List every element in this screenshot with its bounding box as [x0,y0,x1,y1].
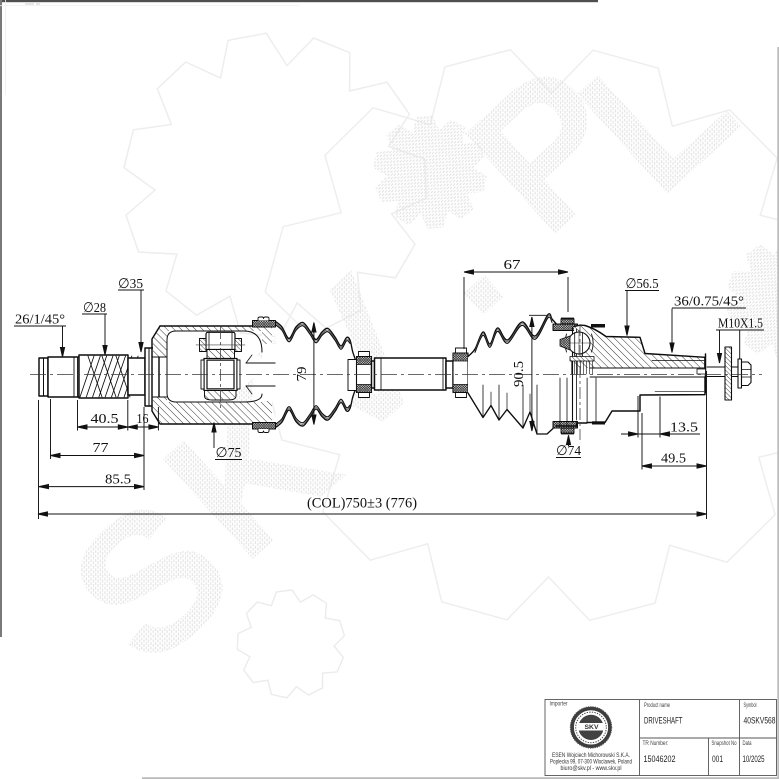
svg-text:(COL)750±3 (776): (COL)750±3 (776) [307,496,417,512]
svg-text:40SKV568: 40SKV568 [744,716,776,727]
svg-text:∅75: ∅75 [216,446,242,461]
svg-text:79: 79 [295,367,310,382]
svg-text:77: 77 [93,441,109,456]
svg-text:∅74: ∅74 [556,444,581,459]
svg-text:DRIVESHAFT: DRIVESHAFT [644,716,683,727]
svg-text:001: 001 [712,754,723,765]
svg-text:∅35: ∅35 [118,277,143,292]
svg-text:Snapshot No: Snapshot No [712,740,737,747]
svg-text:40.5: 40.5 [91,412,119,427]
svg-text:∅56.5: ∅56.5 [626,277,659,292]
svg-text:Product name: Product name [644,702,670,709]
svg-text:Symbol: Symbol [744,702,757,709]
svg-text:85.5: 85.5 [105,473,131,488]
svg-text:biuro@skv.pl - www.skv.pl: biuro@skv.pl - www.skv.pl [561,765,622,772]
svg-text:M10X1.5: M10X1.5 [718,317,763,332]
svg-text:TR Number:: TR Number: [643,740,669,747]
svg-text:36/0.75/45°: 36/0.75/45° [674,295,744,310]
svg-text:26/1/45°: 26/1/45° [15,313,65,328]
svg-text:Importer: Importer [550,701,569,708]
svg-text:13.5: 13.5 [670,421,698,436]
svg-text:10/2025: 10/2025 [743,754,765,765]
svg-text:15046202: 15046202 [644,754,676,765]
svg-text:67: 67 [504,258,521,273]
svg-text:49.5: 49.5 [661,452,686,467]
svg-text:∅28: ∅28 [83,301,106,316]
svg-text:SKV: SKV [585,724,599,731]
svg-text:16: 16 [137,412,149,427]
svg-text:90.5: 90.5 [512,361,527,387]
svg-text:Data: Data [743,740,752,747]
